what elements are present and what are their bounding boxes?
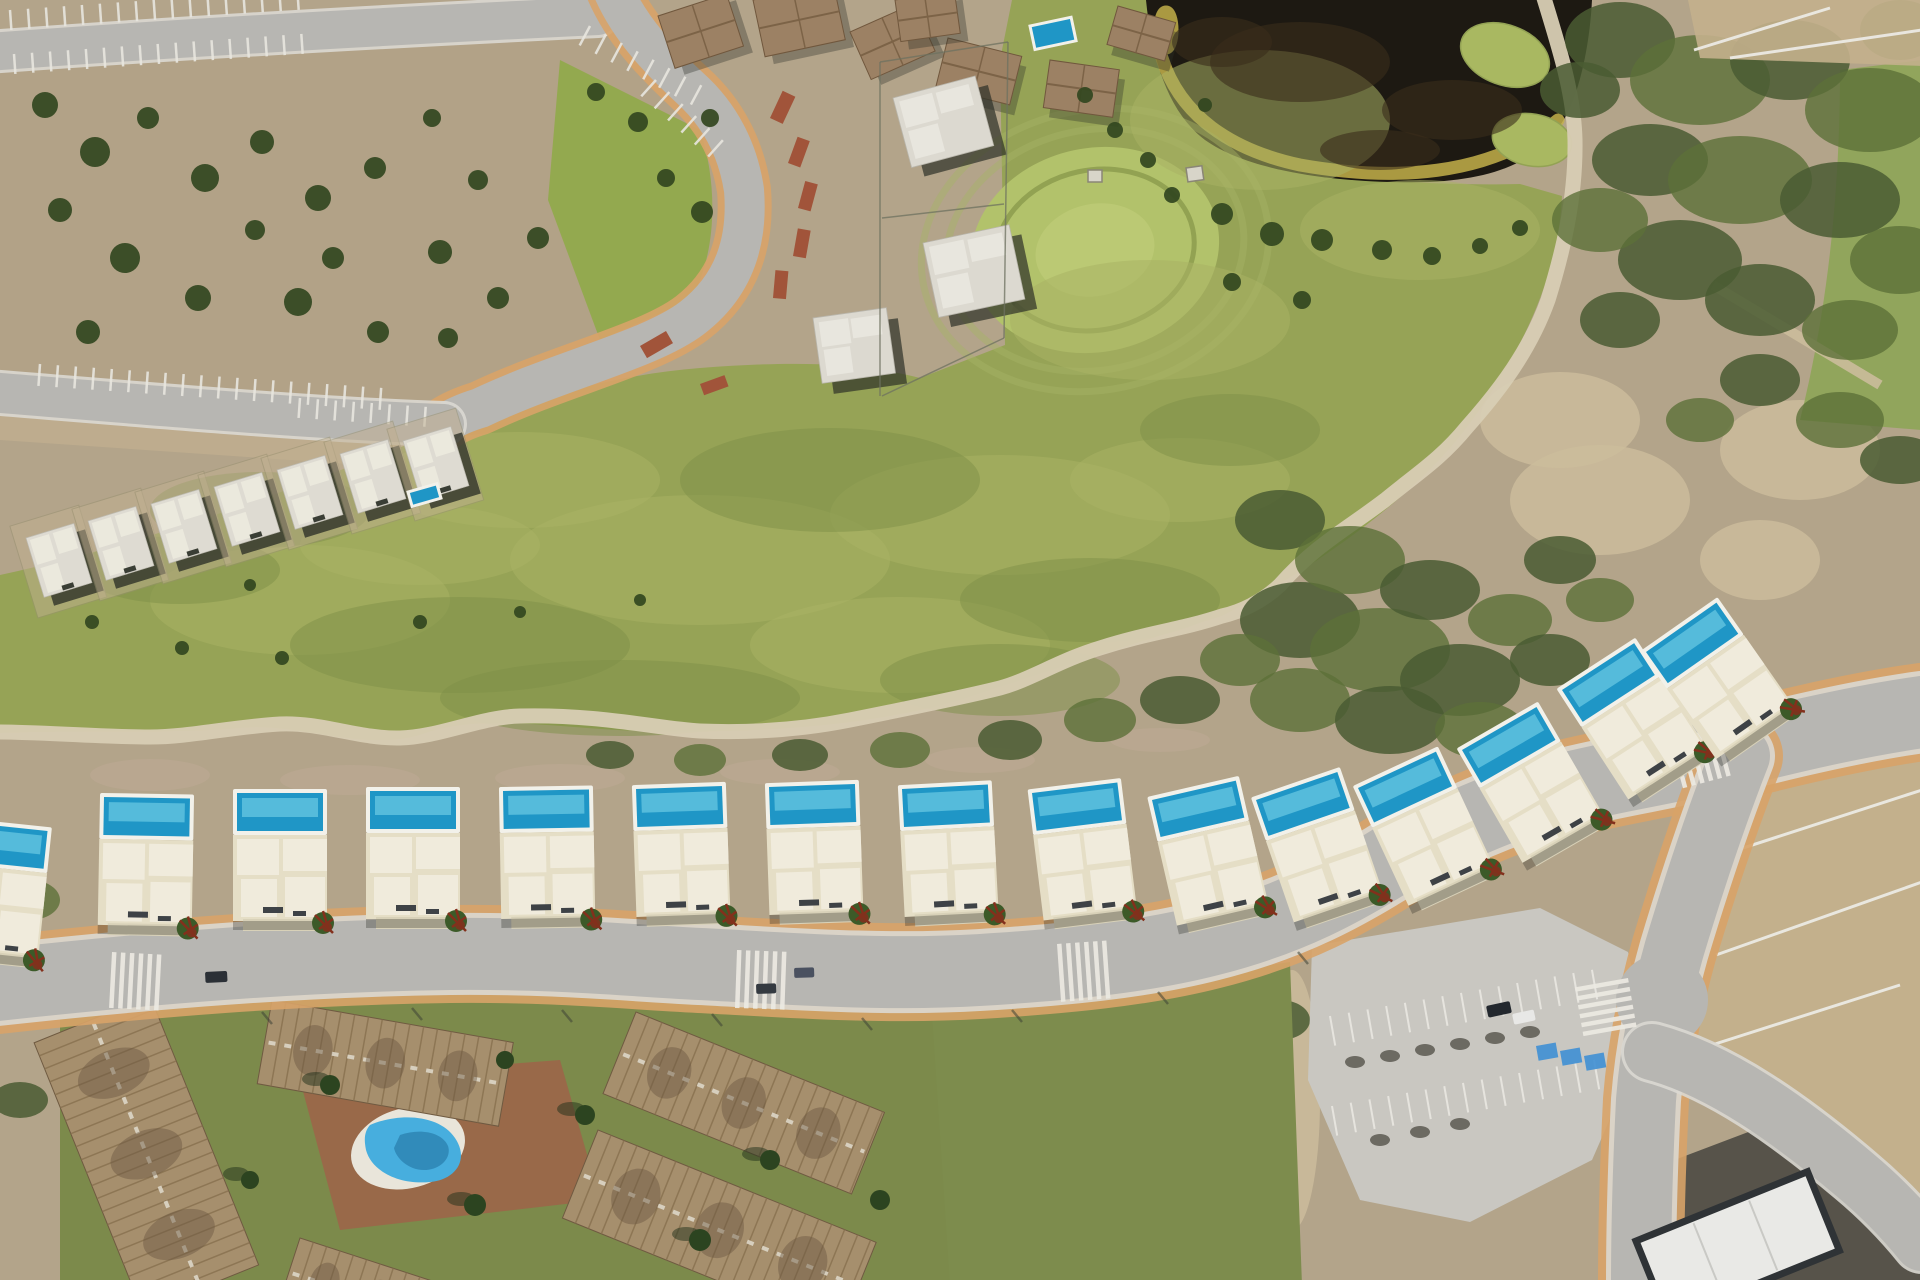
vacant-lots-north bbox=[1688, 0, 1920, 66]
car bbox=[205, 971, 228, 983]
white-house bbox=[813, 306, 907, 395]
car bbox=[794, 967, 814, 978]
aerial-photo-stage bbox=[0, 0, 1920, 1280]
new-villa bbox=[499, 785, 603, 932]
new-villa bbox=[765, 780, 871, 928]
terra bbox=[773, 270, 788, 299]
new-villa bbox=[233, 789, 334, 934]
new-villa bbox=[366, 787, 467, 932]
hut bbox=[1186, 166, 1204, 182]
aerial-satellite-photo bbox=[0, 0, 1920, 1280]
hut bbox=[1088, 170, 1102, 182]
car bbox=[756, 983, 776, 994]
new-villa bbox=[632, 782, 738, 930]
new-villa bbox=[98, 793, 202, 940]
new-villa bbox=[898, 780, 1006, 930]
